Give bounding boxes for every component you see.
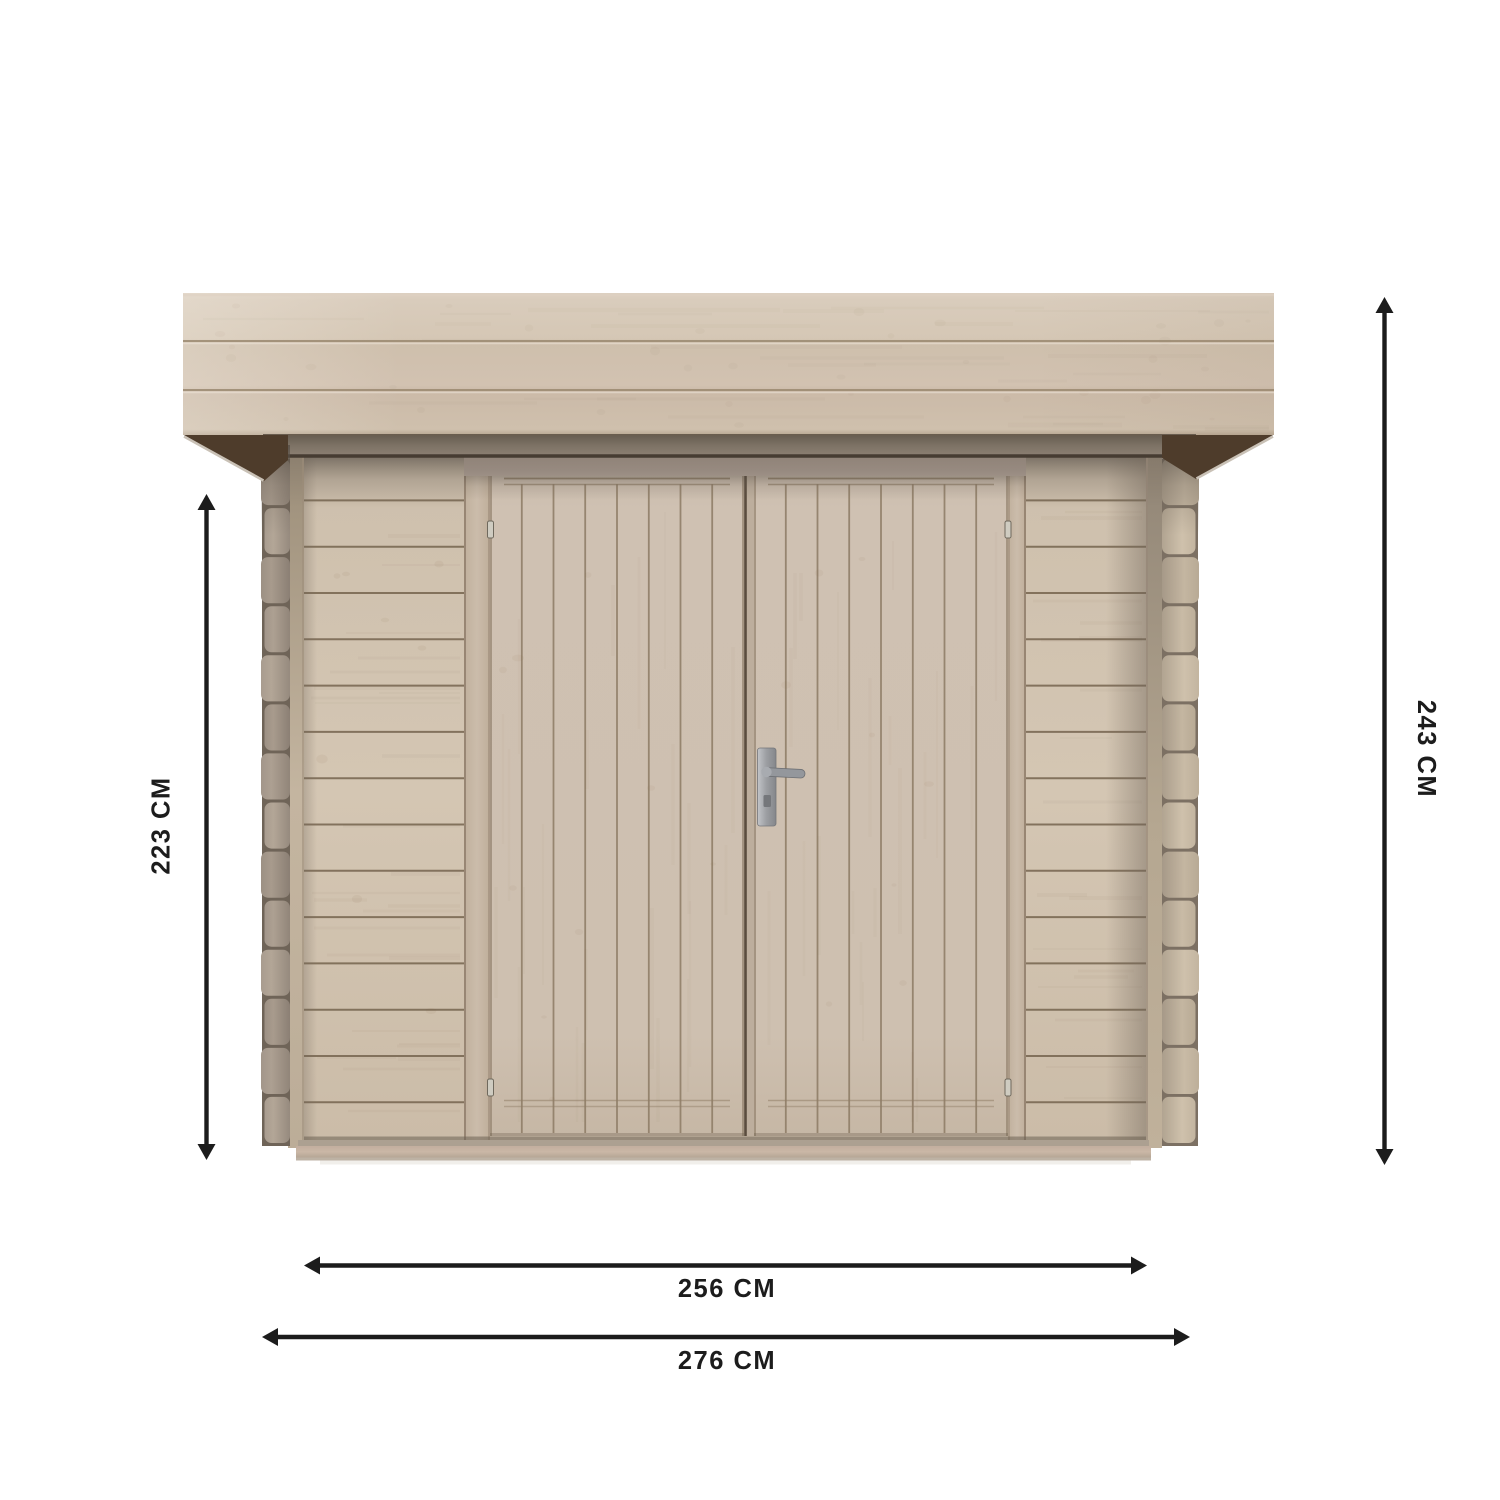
svg-text:256 CM: 256 CM xyxy=(678,1275,776,1303)
svg-text:223 CM: 223 CM xyxy=(148,776,176,874)
svg-text:276 CM: 276 CM xyxy=(678,1347,776,1375)
svg-text:243 CM: 243 CM xyxy=(1412,700,1440,798)
